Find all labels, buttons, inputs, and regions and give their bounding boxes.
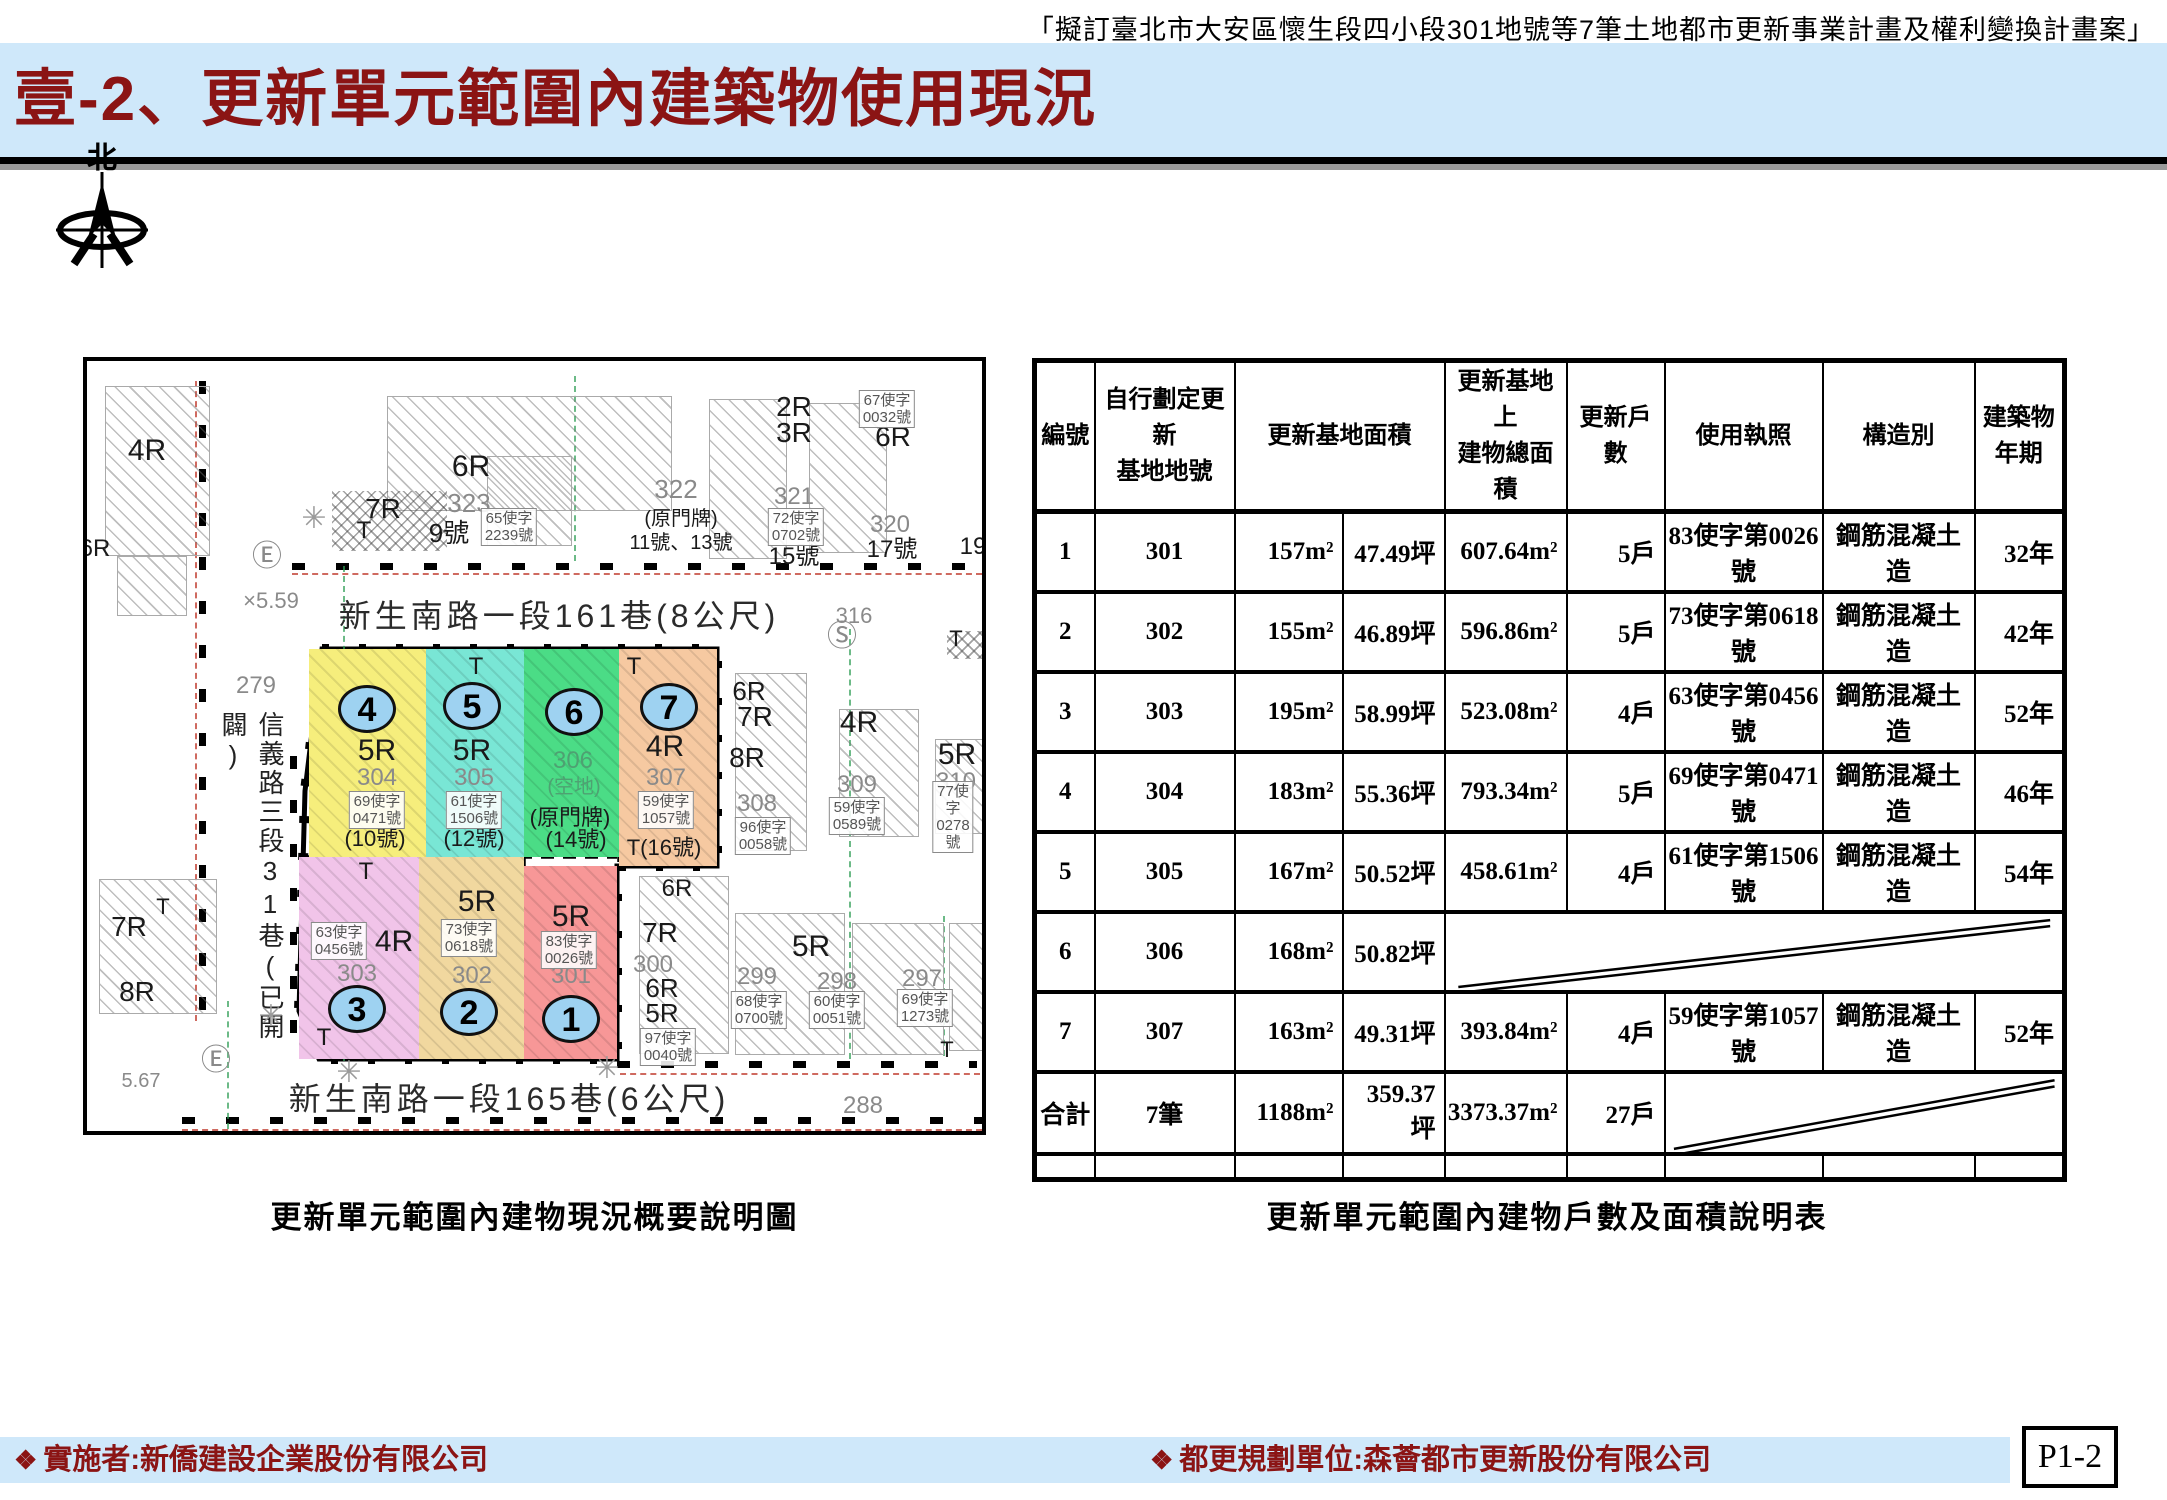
page-number: P1-2 bbox=[2022, 1426, 2118, 1488]
licence-label: 69使字 0471號 bbox=[349, 791, 405, 829]
table-cell: 307 bbox=[1095, 992, 1235, 1072]
map-label: T bbox=[949, 628, 962, 650]
header-rule-gray bbox=[0, 164, 2167, 170]
north-compass-icon: 北 bbox=[52, 142, 152, 272]
building-footprint bbox=[117, 556, 187, 616]
map-label: T bbox=[357, 519, 372, 543]
table-cell: 195m² bbox=[1235, 672, 1343, 752]
table-cell: 163m² bbox=[1235, 992, 1343, 1072]
map-label: 305 bbox=[454, 766, 494, 790]
table-cell: 607.64m² bbox=[1445, 512, 1567, 592]
table-cell: 55.36坪 bbox=[1343, 752, 1445, 832]
map-label: 5R bbox=[358, 736, 396, 766]
table-cell: 42年 bbox=[1975, 592, 2065, 672]
licence-label: 96使字 0058號 bbox=[735, 817, 791, 855]
table-cell bbox=[1823, 1154, 1975, 1180]
map-label: 6R bbox=[83, 537, 110, 561]
column-header: 更新基地上 建物總面積 bbox=[1445, 361, 1567, 512]
parcel-number-badge: 4 bbox=[338, 685, 396, 733]
map-label: 322 bbox=[654, 476, 697, 502]
map-label: 5R bbox=[552, 902, 590, 932]
column-header: 更新基地面積 bbox=[1235, 361, 1445, 512]
table-cell: 393.84m² bbox=[1445, 992, 1567, 1072]
map-label: Ⓔ bbox=[201, 1046, 231, 1076]
licence-label: 77使字 0278號 bbox=[932, 781, 973, 853]
map-label: 308 bbox=[737, 792, 777, 816]
table-cell: 4 bbox=[1035, 752, 1095, 832]
diagonal-strikeout-cell bbox=[1445, 912, 2065, 992]
map-label: 5R bbox=[938, 740, 976, 770]
table-cell: 49.31坪 bbox=[1343, 992, 1445, 1072]
map-label: 4R bbox=[128, 436, 166, 466]
table-cell: 2 bbox=[1035, 592, 1095, 672]
table-cell: 54年 bbox=[1975, 832, 2065, 912]
map-label: 5R bbox=[645, 1000, 678, 1026]
map-label: 8R bbox=[119, 978, 155, 1006]
header-rule-black bbox=[0, 157, 2167, 164]
map-label: 7R bbox=[737, 703, 773, 731]
planner-label: ❖都更規劃單位:森薈都市更新股份有限公司 bbox=[1150, 1437, 1711, 1483]
table-cell: 52年 bbox=[1975, 672, 2065, 752]
map-label: T bbox=[359, 860, 374, 884]
table-row: 5305167m²50.52坪458.61m²4戶61使字第1506號鋼筋混凝土… bbox=[1035, 832, 2065, 912]
map-label: 5R bbox=[458, 887, 496, 917]
column-header: 使用執照 bbox=[1665, 361, 1823, 512]
map-label: 307 bbox=[646, 766, 686, 790]
document-reference: 「擬訂臺北市大安區懷生段四小段301地號等7筆土地都市更新事業計畫及權利變換計畫… bbox=[1027, 8, 2155, 47]
table-row: 1301157m²47.49坪607.64m²5戶83使字第0026號鋼筋混凝土… bbox=[1035, 512, 2065, 592]
map-label: 6R bbox=[662, 877, 693, 901]
table-cell: 63使字第0456號 bbox=[1665, 672, 1823, 752]
map-label: 5R bbox=[453, 736, 491, 766]
map-label: Ⓔ bbox=[252, 542, 282, 572]
column-header: 編號 bbox=[1035, 361, 1095, 512]
parcel-number-badge: 3 bbox=[328, 985, 386, 1033]
map-label: 6R bbox=[452, 452, 490, 482]
map-label: T(16號) bbox=[627, 837, 702, 859]
table-cell: 46.89坪 bbox=[1343, 592, 1445, 672]
table-caption: 更新單元範圍內建物戶數及面積說明表 bbox=[1032, 1192, 2062, 1237]
map-label: ×5.59 bbox=[243, 590, 299, 612]
map-label: 3R bbox=[776, 419, 812, 447]
table-row: 合計7筆1188m²359.37坪3373.37m²27戶 bbox=[1035, 1072, 2065, 1154]
table-cell: 50.82坪 bbox=[1343, 912, 1445, 992]
licence-label: 59使字 0589號 bbox=[829, 797, 885, 835]
pinwheel-icon: ❖ bbox=[14, 1445, 37, 1475]
map-label: 8R bbox=[729, 744, 765, 772]
table-row: 2302155m²46.89坪596.86m²5戶73使字第0618號鋼筋混凝土… bbox=[1035, 592, 2065, 672]
table-cell: 5戶 bbox=[1567, 752, 1665, 832]
road-edge-ticks bbox=[290, 756, 297, 1051]
table-cell: 鋼筋混凝土造 bbox=[1823, 592, 1975, 672]
map-label: (12號) bbox=[443, 828, 504, 850]
map-label: 304 bbox=[357, 766, 397, 790]
table-cell: 27戶 bbox=[1567, 1072, 1665, 1154]
table-cell: 61使字第1506號 bbox=[1665, 832, 1823, 912]
table-cell: 3373.37m² bbox=[1445, 1072, 1567, 1154]
map-label: 302 bbox=[452, 964, 492, 988]
table-cell bbox=[1445, 1154, 1567, 1180]
map-label: 288 bbox=[843, 1094, 883, 1118]
licence-label: 67使字 0032號 bbox=[859, 390, 915, 428]
table-cell: 4戶 bbox=[1567, 672, 1665, 752]
table-cell: 鋼筋混凝土造 bbox=[1823, 832, 1975, 912]
table-cell: 167m² bbox=[1235, 832, 1343, 912]
road-edge-ticks bbox=[292, 563, 982, 570]
table-cell: 合計 bbox=[1035, 1072, 1095, 1154]
table-cell: 5戶 bbox=[1567, 512, 1665, 592]
svg-text:北: 北 bbox=[87, 142, 117, 175]
map-label: 11號、13號 bbox=[629, 533, 732, 553]
column-header: 自行劃定更新 基地地號 bbox=[1095, 361, 1235, 512]
map-label: 17號 bbox=[867, 538, 918, 562]
map-label: (原門牌) bbox=[530, 807, 611, 829]
table-cell: 83使字第0026號 bbox=[1665, 512, 1823, 592]
table-cell: 47.49坪 bbox=[1343, 512, 1445, 592]
table-cell: 6 bbox=[1035, 912, 1095, 992]
licence-label: 61使字 1506號 bbox=[446, 791, 502, 829]
table-cell bbox=[1665, 1154, 1823, 1180]
map-label: (空地) bbox=[547, 777, 600, 797]
map-label: 303 bbox=[337, 962, 377, 986]
table-row: 3303195m²58.99坪523.08m²4戶63使字第0456號鋼筋混凝土… bbox=[1035, 672, 2065, 752]
table-cell: 305 bbox=[1095, 832, 1235, 912]
table-cell: 4戶 bbox=[1567, 992, 1665, 1072]
map-label: 4R bbox=[840, 708, 878, 738]
map-label: 7R bbox=[111, 913, 147, 941]
map-label: ✳ bbox=[594, 1054, 619, 1084]
licence-label: 68使字 0700號 bbox=[731, 991, 787, 1029]
licence-label: 83使字 0026號 bbox=[541, 931, 597, 969]
title-band: 壹-2、更新單元範圍內建築物使用現況 bbox=[0, 43, 2167, 157]
column-header: 構造別 bbox=[1823, 361, 1975, 512]
table-cell: 1188m² bbox=[1235, 1072, 1343, 1154]
licence-label: 72使字 0702號 bbox=[768, 508, 824, 546]
page-title: 壹-2、更新單元範圍內建築物使用現況 bbox=[14, 43, 1097, 157]
table-cell: 301 bbox=[1095, 512, 1235, 592]
table-cell bbox=[1235, 1154, 1343, 1180]
table-cell: 155m² bbox=[1235, 592, 1343, 672]
table-cell bbox=[1567, 1154, 1665, 1180]
table-cell: 5 bbox=[1035, 832, 1095, 912]
table-cell: 59使字第1057號 bbox=[1665, 992, 1823, 1072]
table-cell: 1 bbox=[1035, 512, 1095, 592]
table-cell bbox=[1343, 1154, 1445, 1180]
map-label: 306 bbox=[553, 749, 593, 773]
table-cell: 7 bbox=[1035, 992, 1095, 1072]
table-cell bbox=[1035, 1154, 1095, 1180]
licence-label: 69使字 1273號 bbox=[897, 989, 953, 1027]
table-row bbox=[1035, 1154, 2065, 1180]
building-footprint bbox=[105, 386, 210, 556]
licence-label: 60使字 0051號 bbox=[809, 991, 865, 1029]
map-label: (10號) bbox=[344, 828, 405, 850]
pinwheel-icon: ❖ bbox=[1150, 1445, 1173, 1475]
parcel-number-badge: 2 bbox=[440, 988, 498, 1036]
diagonal-strikeout-cell bbox=[1665, 1072, 2065, 1154]
table-cell: 50.52坪 bbox=[1343, 832, 1445, 912]
street-label: 新生南路一段161巷(8公尺) bbox=[339, 591, 780, 637]
table-cell: 157m² bbox=[1235, 512, 1343, 592]
map-label: 5R bbox=[792, 932, 830, 962]
parcel-number-badge: 7 bbox=[640, 683, 698, 731]
map-label: T bbox=[469, 655, 484, 679]
table-cell: 46年 bbox=[1975, 752, 2065, 832]
table-cell: 183m² bbox=[1235, 752, 1343, 832]
map-label: 279 bbox=[236, 674, 276, 698]
licence-label: 59使字 1057號 bbox=[638, 791, 694, 829]
building-footprint bbox=[949, 923, 986, 1051]
table-cell: 302 bbox=[1095, 592, 1235, 672]
table-cell: 304 bbox=[1095, 752, 1235, 832]
licence-label: 73使字 0618號 bbox=[441, 919, 497, 957]
column-header: 建築物 年期 bbox=[1975, 361, 2065, 512]
table-cell: 359.37坪 bbox=[1343, 1072, 1445, 1154]
table-cell: 鋼筋混凝土造 bbox=[1823, 752, 1975, 832]
table-row: 6306168m²50.82坪 bbox=[1035, 912, 2065, 992]
boundary-line-red bbox=[292, 573, 982, 575]
table-cell: 5戶 bbox=[1567, 592, 1665, 672]
parcel-number-badge: 6 bbox=[545, 688, 603, 736]
table-cell: 458.61m² bbox=[1445, 832, 1567, 912]
footer-band: ❖實施者:新僑建設企業股份有限公司 ❖都更規劃單位:森薈都市更新股份有限公司 bbox=[0, 1437, 2010, 1483]
map-label: (14號) bbox=[545, 829, 606, 851]
map-label: 299 bbox=[737, 965, 777, 989]
map-label: 19 bbox=[960, 535, 986, 559]
parcel-number-badge: 1 bbox=[542, 995, 600, 1043]
map-label: 4R bbox=[375, 927, 413, 957]
table-cell bbox=[1975, 1154, 2065, 1180]
map-label: ✳ bbox=[258, 1002, 283, 1032]
licence-label: 63使字 0456號 bbox=[311, 922, 367, 960]
map-label: 309 bbox=[837, 773, 877, 797]
table-cell: 鋼筋混凝土造 bbox=[1823, 992, 1975, 1072]
table-cell: 303 bbox=[1095, 672, 1235, 752]
table-cell: 69使字第0471號 bbox=[1665, 752, 1823, 832]
table-cell: 鋼筋混凝土造 bbox=[1823, 512, 1975, 592]
boundary-line-red bbox=[182, 1129, 982, 1131]
map-label: ✳ bbox=[336, 1058, 361, 1088]
buildings-table: 編號自行劃定更新 基地地號更新基地面積更新基地上 建物總面積更新戶數使用執照構造… bbox=[1032, 358, 2067, 1182]
cadastral-map: 信義路三段31巷(已開闢) 4567321新生南路一段161巷(8公尺)新生南路… bbox=[83, 357, 986, 1135]
map-label: ✳ bbox=[301, 504, 326, 534]
licence-label: 65使字 2239號 bbox=[481, 508, 537, 546]
parcel-number-badge: 5 bbox=[443, 682, 501, 730]
table-cell: 306 bbox=[1095, 912, 1235, 992]
table-cell: 3 bbox=[1035, 672, 1095, 752]
map-label: T bbox=[627, 655, 642, 679]
table-cell: 523.08m² bbox=[1445, 672, 1567, 752]
table-cell: 73使字第0618號 bbox=[1665, 592, 1823, 672]
column-header: 更新戶數 bbox=[1567, 361, 1665, 512]
implementer-label: ❖實施者:新僑建設企業股份有限公司 bbox=[14, 1437, 488, 1483]
table-row: 7307163m²49.31坪393.84m²4戶59使字第1057號鋼筋混凝土… bbox=[1035, 992, 2065, 1072]
table-cell: 鋼筋混凝土造 bbox=[1823, 672, 1975, 752]
map-label: Ⓢ bbox=[827, 622, 857, 652]
map-label: T bbox=[940, 1039, 953, 1061]
table-cell: 4戶 bbox=[1567, 832, 1665, 912]
table-cell: 793.34m² bbox=[1445, 752, 1567, 832]
licence-label: 97使字 0040號 bbox=[640, 1028, 696, 1066]
map-label: 15號 bbox=[769, 545, 820, 569]
table-cell: 32年 bbox=[1975, 512, 2065, 592]
map-label: T bbox=[156, 896, 169, 918]
table-cell: 58.99坪 bbox=[1343, 672, 1445, 752]
map-label: 297 bbox=[902, 967, 942, 991]
table-cell bbox=[1095, 1154, 1235, 1180]
map-label: 9號 bbox=[429, 520, 469, 546]
table-cell: 168m² bbox=[1235, 912, 1343, 992]
map-label: 4R bbox=[646, 732, 684, 762]
map-label: 321 bbox=[774, 485, 814, 509]
table-cell: 596.86m² bbox=[1445, 592, 1567, 672]
map-label: (原門牌) bbox=[644, 509, 717, 529]
table-cell: 52年 bbox=[1975, 992, 2065, 1072]
map-caption: 更新單元範圍內建物現況概要說明圖 bbox=[83, 1192, 986, 1237]
table-row: 4304183m²55.36坪793.34m²5戶69使字第0471號鋼筋混凝土… bbox=[1035, 752, 2065, 832]
map-label: T bbox=[317, 1026, 332, 1050]
map-label: 5.67 bbox=[122, 1071, 161, 1091]
map-label: 320 bbox=[870, 513, 910, 537]
table-cell: 7筆 bbox=[1095, 1072, 1235, 1154]
map-label: 7R bbox=[642, 919, 678, 947]
